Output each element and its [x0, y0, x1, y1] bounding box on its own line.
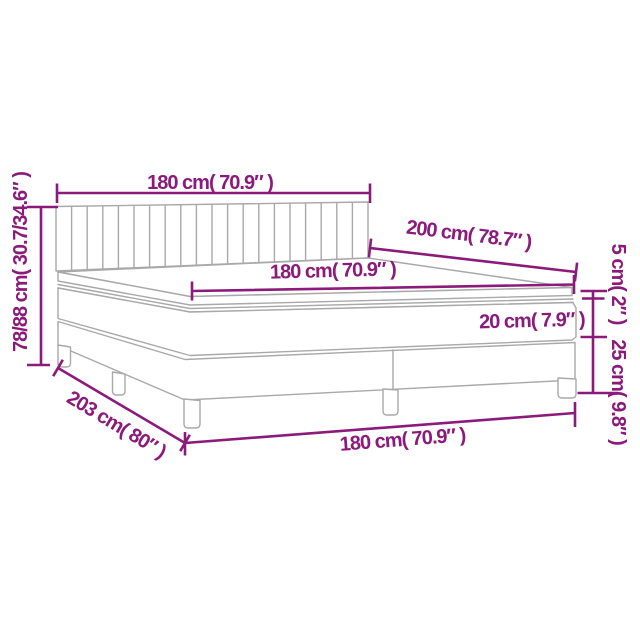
bed-leg — [184, 399, 200, 428]
label-headboard-width: 180 cm( 70.9″ ) — [147, 172, 273, 194]
label-overall-height: 78/88 cm( 30.7/34.6″ ) — [10, 172, 32, 352]
diagram-svg: 180 cm( 70.9″ ) 200 cm( 78.7″ ) 180 cm( … — [0, 0, 640, 640]
bed-leg — [558, 378, 576, 398]
label-length-top: 200 cm( 78.7″ ) — [405, 216, 533, 253]
bed-leg — [383, 389, 398, 415]
dimension-diagram: 180 cm( 70.9″ ) 200 cm( 78.7″ ) 180 cm( … — [0, 0, 640, 640]
label-mattress-height: 20 cm( 7.9″ ) — [479, 309, 585, 334]
bed-leg — [113, 372, 126, 395]
label-base-height: 25 cm( 9.8″ ) — [607, 339, 629, 445]
label-topper-height: 5 cm( 2″ ) — [607, 244, 629, 325]
label-mattress-width: 180 cm( 70.9″ ) — [270, 258, 397, 283]
